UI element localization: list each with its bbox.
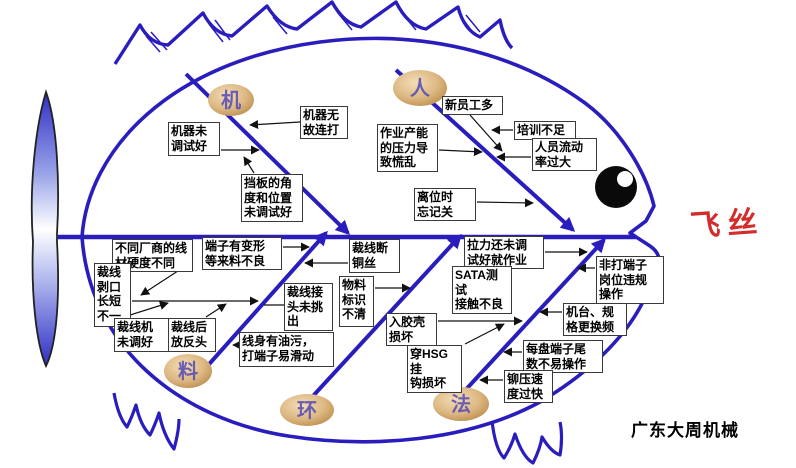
- cause-box-sata: SATA测试 接触不良: [452, 266, 512, 314]
- cause-box-dangban: 挡板的角 度和位置 未调试好: [241, 174, 303, 222]
- cause-box-maoya-sudu: 铆压速 度过快: [504, 370, 553, 403]
- category-label-liao: 料: [178, 360, 198, 383]
- fishbone-diagram: 机人料环法 机器无 故连打机器未 调试好挡板的角 度和位置 未调试好新员工多培训…: [0, 0, 796, 468]
- fish-eye-highlight: [617, 171, 633, 187]
- category-label-ji: 机: [221, 88, 241, 112]
- cause-box-jiqi-wei: 机器未 调试好: [168, 122, 220, 156]
- fish-illustration: 机人料环法: [0, 0, 796, 468]
- cause-box-caixianhou: 裁线后 放反头: [168, 318, 216, 352]
- cause-box-chuan-hsg: 穿HSG挂 钩损坏: [407, 345, 462, 393]
- watermark: 广东大周机械: [631, 416, 739, 441]
- cause-box-liwei: 离位时 忘记关: [414, 188, 476, 221]
- cause-box-caixianji: 裁线机 未调好: [114, 318, 169, 352]
- category-label-ren: 人: [410, 77, 431, 100]
- anal-fin: [492, 421, 562, 463]
- pelvic-fin: [114, 393, 179, 449]
- cause-box-wuliao-biaoshi: 物料 标识 不清: [339, 276, 374, 327]
- cause-box-lali: 拉力还未调 试好就作业: [464, 236, 544, 269]
- problem-label: 飞丝: [689, 196, 766, 245]
- cause-box-meipan-duanzi: 每盘端子尾 数不易操作: [523, 340, 603, 373]
- cause-box-rujiaoqiao: 入胶壳 损坏: [386, 313, 437, 346]
- category-label-fa: 法: [451, 392, 471, 416]
- cause-box-feida-duanzi: 非打端子 岗位违规 操作: [596, 256, 664, 304]
- tail-fin: [32, 92, 58, 366]
- cause-box-renyuan-liudong: 人员流动 率过大: [532, 138, 597, 171]
- cause-box-jiqi-wugu: 机器无 故连打: [300, 106, 348, 139]
- cause-box-xianshen-youwu: 线身有油污， 打端子易滑动: [239, 332, 334, 367]
- cause-box-peixun: 培训不足: [514, 121, 576, 140]
- cause-box-zuoye-channeng: 作业产能 的压力导 致慌乱: [377, 124, 438, 172]
- fish-eye: [595, 166, 637, 208]
- cause-box-caixian-jietou: 裁线接 头未挑 出: [284, 283, 333, 331]
- cause-box-jitai-guige: 机台、规 格更换频: [563, 303, 627, 336]
- cause-box-caixian-duan: 裁线断 铜丝: [349, 239, 400, 273]
- cause-box-duanzi-bianxing: 端子有变形 等来料不良: [202, 237, 282, 270]
- category-label-huan: 环: [297, 400, 317, 422]
- cause-box-xin-yuangong: 新员工多: [442, 96, 503, 115]
